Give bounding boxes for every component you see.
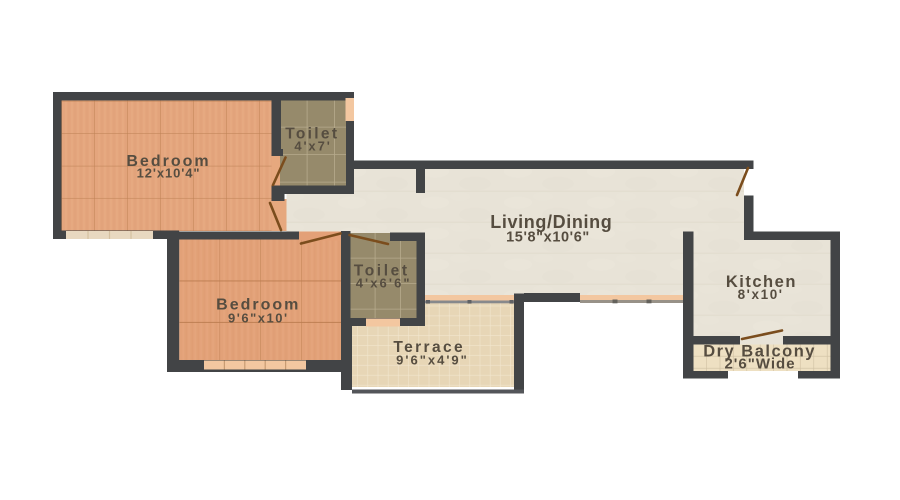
svg-text:12'x10'4": 12'x10'4" [137, 166, 201, 181]
svg-text:9'6"x10': 9'6"x10' [228, 310, 289, 325]
svg-text:8'x10': 8'x10' [738, 287, 784, 302]
svg-text:4'x7': 4'x7' [294, 139, 331, 154]
svg-text:4'x6'6": 4'x6'6" [356, 275, 412, 290]
svg-text:15'8"x10'6": 15'8"x10'6" [506, 230, 590, 246]
svg-text:9'6"x4'9": 9'6"x4'9" [396, 353, 469, 368]
svg-text:2'6"Wide: 2'6"Wide [724, 355, 795, 372]
